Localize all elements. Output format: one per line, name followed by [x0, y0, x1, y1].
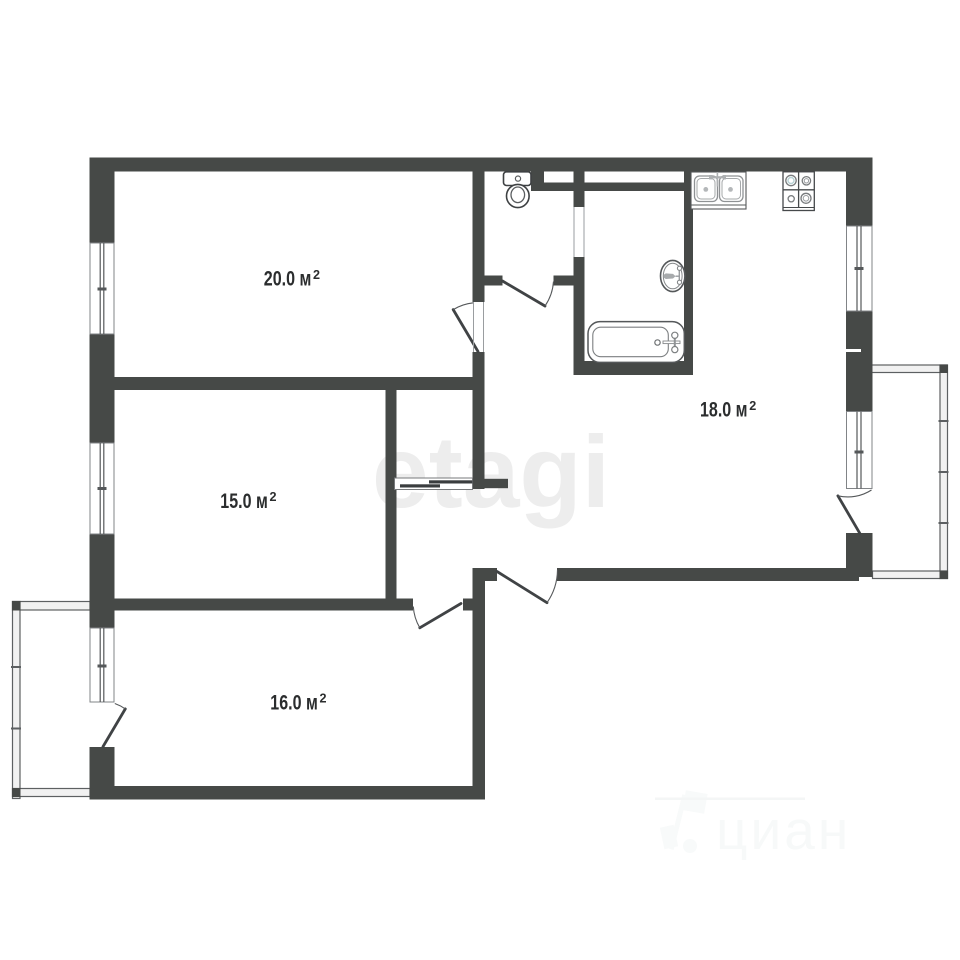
svg-text:циан: циан [716, 799, 851, 861]
svg-text:2: 2 [749, 399, 756, 413]
svg-text:2: 2 [270, 490, 277, 504]
svg-text:2: 2 [320, 692, 327, 706]
svg-text:2: 2 [313, 268, 320, 282]
svg-text:18.0 м: 18.0 м [700, 398, 748, 422]
svg-text:15.0 м: 15.0 м [220, 489, 267, 513]
svg-text:20.0 м: 20.0 м [264, 267, 312, 291]
svg-text:etagi: etagi [372, 415, 610, 529]
svg-text:16.0 м: 16.0 м [270, 690, 318, 714]
